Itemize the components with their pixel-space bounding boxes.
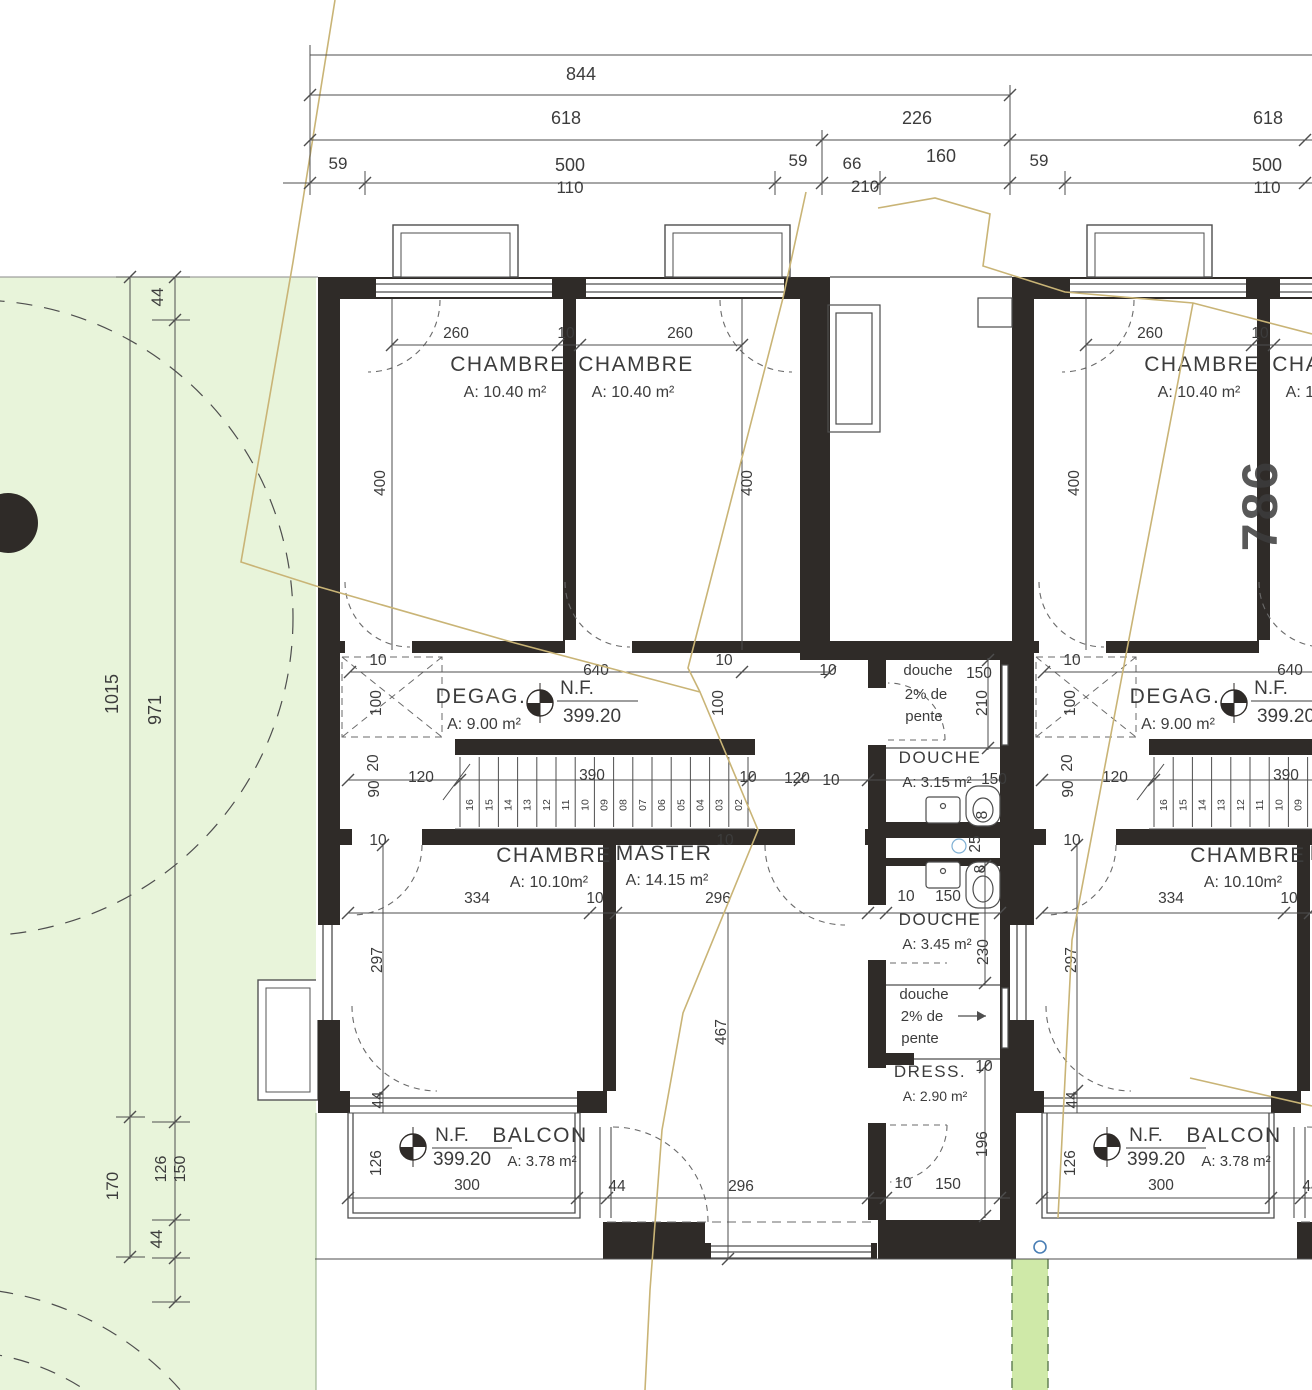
stair-tread-number: 07 xyxy=(637,799,649,811)
stair-tread-number: 15 xyxy=(483,799,495,811)
room-chambre2-area: A: 10.40 m² xyxy=(592,384,675,401)
dim-25: 25 xyxy=(967,835,984,852)
sink-icon xyxy=(926,797,960,823)
dim-10-a: 10 xyxy=(557,325,575,342)
dim-196: 196 xyxy=(974,1131,991,1157)
dim-400-b: 400 xyxy=(739,470,756,496)
shower-drain-icon xyxy=(1002,988,1008,1048)
dim-10-c: 10 xyxy=(715,652,733,669)
room-douche1-area: A: 3.15 m² xyxy=(902,774,971,791)
dim-10-l: 10 xyxy=(894,1175,912,1192)
dim-297: 297 xyxy=(369,947,386,973)
stair-tread-number: 04 xyxy=(695,799,707,811)
dim-59-b: 59 xyxy=(789,151,808,170)
room-douche2-area: A: 3.45 m² xyxy=(902,936,971,953)
dim-10-h: 10 xyxy=(716,832,734,849)
note-douche2-l3: pente xyxy=(901,1030,939,1047)
room-degag-area: A: 9.00 m² xyxy=(447,716,521,733)
room-chambre2-name: CHAMBRE xyxy=(578,353,694,376)
dim-467: 467 xyxy=(713,1019,730,1045)
stair-tread-number: 05 xyxy=(675,799,687,811)
dim-44-b: 44 xyxy=(608,1178,626,1195)
dim-150-g: 150 xyxy=(172,1156,189,1183)
room-degag-name: DEGAG. xyxy=(436,685,527,708)
stair-tread-number: 03 xyxy=(714,799,726,811)
dim-210-top: 210 xyxy=(851,177,879,196)
room-douche2-name: DOUCHE xyxy=(899,910,982,929)
dim-10-k: 10 xyxy=(975,1058,993,1075)
dim-59-a: 59 xyxy=(329,154,348,173)
dim-20: 20 xyxy=(365,754,382,772)
room-chambre1-area: A: 10.40 m² xyxy=(464,384,547,401)
stair-tread-number: 12 xyxy=(541,799,553,811)
dim-300: 300 xyxy=(454,1177,480,1194)
dim-10-e: 10 xyxy=(739,769,757,786)
parcel-number: 786 xyxy=(1232,459,1288,551)
stair-tread-number: 06 xyxy=(656,799,668,811)
stair-tread-number: 02 xyxy=(733,799,745,811)
dim-100-b: 100 xyxy=(710,690,727,716)
dim-120-a: 120 xyxy=(408,769,434,786)
note-douche1-l3: pente xyxy=(905,708,943,725)
dim-334: 334 xyxy=(464,890,490,907)
dim-210-a: 210 xyxy=(974,690,991,716)
room-chambre3-area: A: 10.10m² xyxy=(510,874,589,891)
dim-126-g: 126 xyxy=(153,1156,170,1183)
dim-10-b: 10 xyxy=(369,652,387,669)
dim-150-a: 150 xyxy=(966,665,992,682)
stair-tread-number: 10 xyxy=(579,799,591,811)
dim-400-a: 400 xyxy=(372,470,389,496)
stair-tread-number: 14 xyxy=(503,799,515,811)
room-dress-area: A: 2.90 m² xyxy=(903,1088,968,1104)
dim-10-j: 10 xyxy=(897,888,915,905)
dim-44-topleft: 44 xyxy=(148,288,167,307)
note-douche2-l2: 2% de xyxy=(901,1008,944,1025)
dim-120-b: 120 xyxy=(784,770,810,787)
stair-tread-number: 08 xyxy=(618,799,630,811)
dim-10-d: 10 xyxy=(819,662,837,679)
dim-150-c: 150 xyxy=(935,888,961,905)
dim-618-right: 618 xyxy=(1253,108,1283,128)
dim-8-a: 8 xyxy=(974,811,991,820)
shower-drain-icon xyxy=(1002,665,1008,745)
note-douche2-l1: douche xyxy=(899,986,948,1003)
dim-230: 230 xyxy=(975,939,992,965)
dim-296-b: 296 xyxy=(728,1178,754,1195)
dim-44-bottomleft: 44 xyxy=(147,1230,166,1249)
dim-971: 971 xyxy=(145,695,165,725)
room-douche1-name: DOUCHE xyxy=(899,748,982,767)
courtyard-shelf xyxy=(978,298,1012,327)
floor-plan-stage: CHAMBREA: 10.40 m²CHAMBREA: 10.40 m²DEGA… xyxy=(0,0,1312,1390)
dim-44-a: 44 xyxy=(370,1091,387,1109)
room-master-area: A: 14.15 m² xyxy=(626,872,709,889)
dim-618-left: 618 xyxy=(551,108,581,128)
dim-500-right: 500 xyxy=(1252,155,1282,175)
dim-110-left: 110 xyxy=(556,178,583,197)
room-chambre1-name: CHAMBRE xyxy=(450,353,566,376)
dim-90: 90 xyxy=(366,780,383,798)
room-balcon-area: A: 3.78 m² xyxy=(507,1153,576,1170)
dim-226: 226 xyxy=(902,108,932,128)
dim-100-a: 100 xyxy=(368,690,385,716)
stair-tread-number: 13 xyxy=(522,799,534,811)
dim-160: 160 xyxy=(926,146,956,166)
dim-844: 844 xyxy=(566,64,596,84)
dim-10-f: 10 xyxy=(822,772,840,789)
dim-66: 66 xyxy=(843,154,862,173)
note-douche1-l1: douche xyxy=(903,662,952,679)
dim-150-b: 150 xyxy=(981,771,1007,788)
room-dress-name: DRESS. xyxy=(894,1062,966,1081)
note-douche1-l2: 2% de xyxy=(905,686,948,703)
sink-icon xyxy=(926,862,960,888)
dim-8-b: 8 xyxy=(972,865,989,874)
level-nf-1: N.F. xyxy=(560,678,594,699)
dim-260-b: 260 xyxy=(667,325,693,342)
floor-plan-canvas: CHAMBREA: 10.40 m²CHAMBREA: 10.40 m²DEGA… xyxy=(0,0,1312,1390)
room-chambre3-name: CHAMBRE xyxy=(496,844,612,867)
ground-floor-bay xyxy=(258,980,318,1100)
dim-170: 170 xyxy=(103,1172,122,1200)
dim-10-g: 10 xyxy=(369,832,387,849)
dim-59-c: 59 xyxy=(1030,151,1049,170)
level-val-2: 399.20 xyxy=(433,1149,491,1170)
dim-110-right: 110 xyxy=(1253,178,1280,197)
room-master-name: MASTER xyxy=(616,842,713,865)
dim-10-i: 10 xyxy=(586,890,604,907)
level-val-1: 399.20 xyxy=(563,706,621,727)
dim-500-left: 500 xyxy=(555,155,585,175)
dim-150-d: 150 xyxy=(935,1176,961,1193)
level-nf-2: N.F. xyxy=(435,1125,469,1146)
stair-tread-number: 09 xyxy=(599,799,611,811)
stair-tread-number: 16 xyxy=(464,799,476,811)
stair-tread-number: 11 xyxy=(560,799,572,810)
dim-390: 390 xyxy=(579,767,605,784)
dim-1015: 1015 xyxy=(102,674,122,714)
dim-260-a: 260 xyxy=(443,325,469,342)
room-balcon-name: BALCON xyxy=(492,1124,587,1147)
dim-126-a: 126 xyxy=(368,1150,385,1176)
